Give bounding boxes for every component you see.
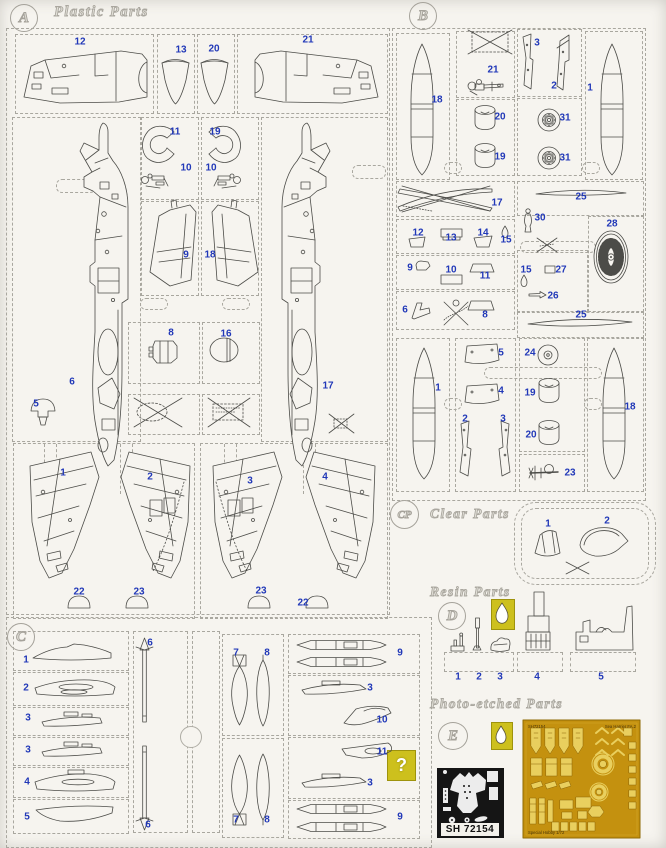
part-number-label-c-3: 3	[25, 713, 31, 724]
part-number-label-b-5: 5	[498, 348, 504, 359]
parts-group-box	[13, 631, 129, 671]
part-number-label-b-19: 19	[524, 388, 535, 399]
part-number-label-d-4: 4	[534, 672, 540, 683]
fret-brand-text: Special Hobby 1/72	[528, 830, 565, 835]
sprue-channel	[120, 444, 133, 494]
part-number-label-b-27: 27	[555, 265, 566, 276]
part-number-label-cp-2: 2	[604, 516, 610, 527]
part-number-label-b-31: 31	[559, 153, 570, 164]
part-number-label-b-11: 11	[480, 271, 491, 282]
clear-parts-inner-outline	[521, 508, 649, 579]
part-number-label-c-6: 6	[147, 638, 153, 649]
parts-group-box	[585, 31, 643, 180]
section-e-title: Photo-etched Parts	[430, 696, 563, 712]
part-number-label-cp-1: 1	[545, 519, 551, 530]
badge-d: D	[438, 602, 466, 630]
etch-fret: SH72154 Sea Harrier FA.2 Special Hobby 1…	[523, 720, 640, 838]
part-number-label-a-10: 10	[180, 163, 191, 174]
part-drawing-resin	[451, 592, 633, 652]
parts-group-box	[396, 33, 450, 180]
sprue-runner-stub	[444, 162, 462, 174]
part-number-label-c-7: 7	[233, 815, 239, 826]
part-number-label-a-13: 13	[175, 45, 186, 56]
part-number-label-b-26: 26	[547, 291, 558, 302]
part-number-label-a-12: 12	[74, 37, 85, 48]
part-number-label-b-1: 1	[587, 83, 593, 94]
parts-group-box	[456, 31, 515, 98]
part-number-label-b-18: 18	[431, 95, 442, 106]
part-number-label-c-10: 10	[376, 715, 387, 726]
part-number-label-c-9: 9	[397, 648, 403, 659]
part-number-label-a-1: 1	[60, 468, 66, 479]
badge-e: E	[438, 722, 468, 750]
part-number-label-d-2: 2	[476, 672, 482, 683]
resin-droplet-marker	[491, 599, 515, 630]
part-number-label-c-1: 1	[23, 655, 29, 666]
parts-group-box	[222, 634, 284, 736]
part-number-label-c-3: 3	[367, 778, 373, 789]
part-number-label-a-16: 16	[220, 329, 231, 340]
parts-group-box	[570, 652, 636, 672]
parts-group-box	[444, 652, 514, 672]
part-number-label-a-22: 22	[73, 587, 84, 598]
part-number-label-b-13: 13	[445, 233, 456, 244]
section-a-title: Plastic Parts	[54, 4, 149, 21]
section-d-title: Resin Parts	[430, 584, 511, 600]
sprue-runner-stub	[520, 241, 596, 253]
part-number-label-c-3: 3	[367, 683, 373, 694]
sprue-channel	[44, 444, 57, 478]
parts-group-box	[222, 738, 284, 838]
part-number-label-b-2: 2	[551, 81, 557, 92]
part-number-label-c-7: 7	[233, 648, 239, 659]
badge-cp: CP	[390, 500, 419, 529]
sprue-punch-hole	[180, 726, 202, 748]
part-number-label-b-21: 21	[487, 65, 498, 76]
section-cp-title: Clear Parts	[430, 506, 510, 522]
part-number-label-a-10: 10	[205, 163, 216, 174]
parts-group-box	[517, 98, 582, 176]
part-number-label-b-19: 19	[494, 152, 505, 163]
parts-group-box	[288, 675, 420, 736]
parts-group-box	[517, 652, 563, 672]
part-number-label-b-28: 28	[606, 219, 617, 230]
part-number-label-c-6: 6	[145, 820, 151, 831]
parts-group-box	[237, 34, 388, 114]
part-number-label-b-15: 15	[520, 265, 531, 276]
sprue-runner-stub	[584, 398, 602, 410]
part-number-label-b-25: 25	[575, 192, 586, 203]
part-number-label-a-11: 11	[170, 127, 181, 138]
part-number-label-b-8: 8	[482, 310, 488, 321]
part-number-label-b-23: 23	[564, 468, 575, 479]
part-number-label-b-10: 10	[445, 265, 456, 276]
unknown-part-marker: ?	[387, 750, 416, 781]
sprue-runner-stub	[140, 298, 168, 310]
badge-b: B	[409, 2, 437, 30]
part-number-label-a-3: 3	[247, 476, 253, 487]
parts-group-box	[128, 394, 200, 435]
parts-group-box	[13, 672, 129, 706]
part-number-label-c-8: 8	[264, 815, 270, 826]
parts-group-box	[12, 117, 141, 442]
part-number-label-d-5: 5	[598, 672, 604, 683]
sprue-runner-stub	[222, 298, 250, 310]
parts-group-box	[133, 631, 188, 833]
parts-group-box	[141, 201, 199, 296]
part-number-label-c-5: 5	[24, 812, 30, 823]
part-number-label-b-31: 31	[559, 113, 570, 124]
part-number-label-a-6: 6	[69, 377, 75, 388]
part-number-label-a-5: 5	[33, 399, 39, 410]
part-number-label-c-3: 3	[25, 745, 31, 756]
parts-group-box	[587, 338, 644, 492]
parts-group-box	[202, 394, 260, 435]
part-number-label-d-1: 1	[455, 672, 461, 683]
parts-group-box	[517, 250, 588, 312]
part-number-label-a-17: 17	[322, 381, 333, 392]
sprue-runner-stub	[484, 367, 602, 379]
sprue-runner-stub	[56, 179, 96, 193]
parts-group-box	[13, 443, 195, 619]
part-number-label-b-12: 12	[412, 228, 423, 239]
part-number-label-b-20: 20	[494, 112, 505, 123]
sprue-runner-stub	[352, 165, 386, 179]
part-number-label-a-23: 23	[255, 586, 266, 597]
part-number-label-c-9: 9	[397, 812, 403, 823]
parts-group-box	[588, 216, 644, 312]
part-number-label-a-19: 19	[209, 127, 220, 138]
part-number-label-b-9: 9	[407, 263, 413, 274]
part-number-label-c-8: 8	[264, 648, 270, 659]
part-number-label-a-18: 18	[204, 250, 215, 261]
part-number-label-b-25: 25	[575, 310, 586, 321]
fret-code-text: SH72154	[528, 724, 546, 729]
parts-group-box	[128, 322, 200, 384]
part-number-label-b-17: 17	[491, 198, 502, 209]
part-number-label-b-1: 1	[435, 383, 441, 394]
part-number-label-a-2: 2	[147, 472, 153, 483]
part-number-label-b-6: 6	[402, 305, 408, 316]
part-number-label-a-9: 9	[183, 250, 189, 261]
part-number-label-a-20: 20	[208, 44, 219, 55]
part-number-label-c-11: 11	[377, 747, 388, 758]
fret-name-text: Sea Harrier FA.2	[605, 724, 637, 729]
etch-droplet-marker	[491, 722, 513, 750]
part-number-label-a-23: 23	[133, 587, 144, 598]
sprue-runner-stub	[444, 398, 462, 410]
parts-group-box	[13, 767, 129, 798]
part-number-label-b-20: 20	[525, 430, 536, 441]
part-number-label-b-3: 3	[500, 414, 506, 425]
part-number-label-a-8: 8	[168, 328, 174, 339]
parts-group-box	[396, 338, 450, 492]
part-number-label-c-2: 2	[23, 683, 29, 694]
part-number-label-b-14: 14	[477, 228, 488, 239]
part-number-label-a-21: 21	[302, 35, 313, 46]
part-number-label-a-4: 4	[322, 472, 328, 483]
sprue-channel	[224, 444, 237, 478]
part-number-label-b-2: 2	[462, 414, 468, 425]
part-number-label-b-15: 15	[500, 235, 511, 246]
part-number-label-a-22: 22	[297, 598, 308, 609]
part-number-label-d-3: 3	[497, 672, 503, 683]
parts-group-box	[517, 29, 582, 97]
parts-group-box	[396, 291, 515, 330]
kit-number-label: SH 72154	[441, 823, 499, 836]
part-number-label-b-18: 18	[624, 402, 635, 413]
part-number-label-c-4: 4	[24, 777, 30, 788]
part-number-label-b-30: 30	[534, 213, 545, 224]
parts-group-box	[13, 799, 129, 834]
sprue-runner-stub	[582, 162, 600, 174]
parts-group-box	[201, 201, 259, 296]
part-number-label-b-24: 24	[524, 348, 535, 359]
part-number-label-b-4: 4	[498, 386, 504, 397]
parts-map-page: Plastic Parts Clear Parts Resin Parts Ph…	[0, 0, 666, 848]
part-number-label-b-3: 3	[534, 38, 540, 49]
parts-group-box	[456, 99, 515, 176]
sprue-channel	[303, 444, 316, 494]
